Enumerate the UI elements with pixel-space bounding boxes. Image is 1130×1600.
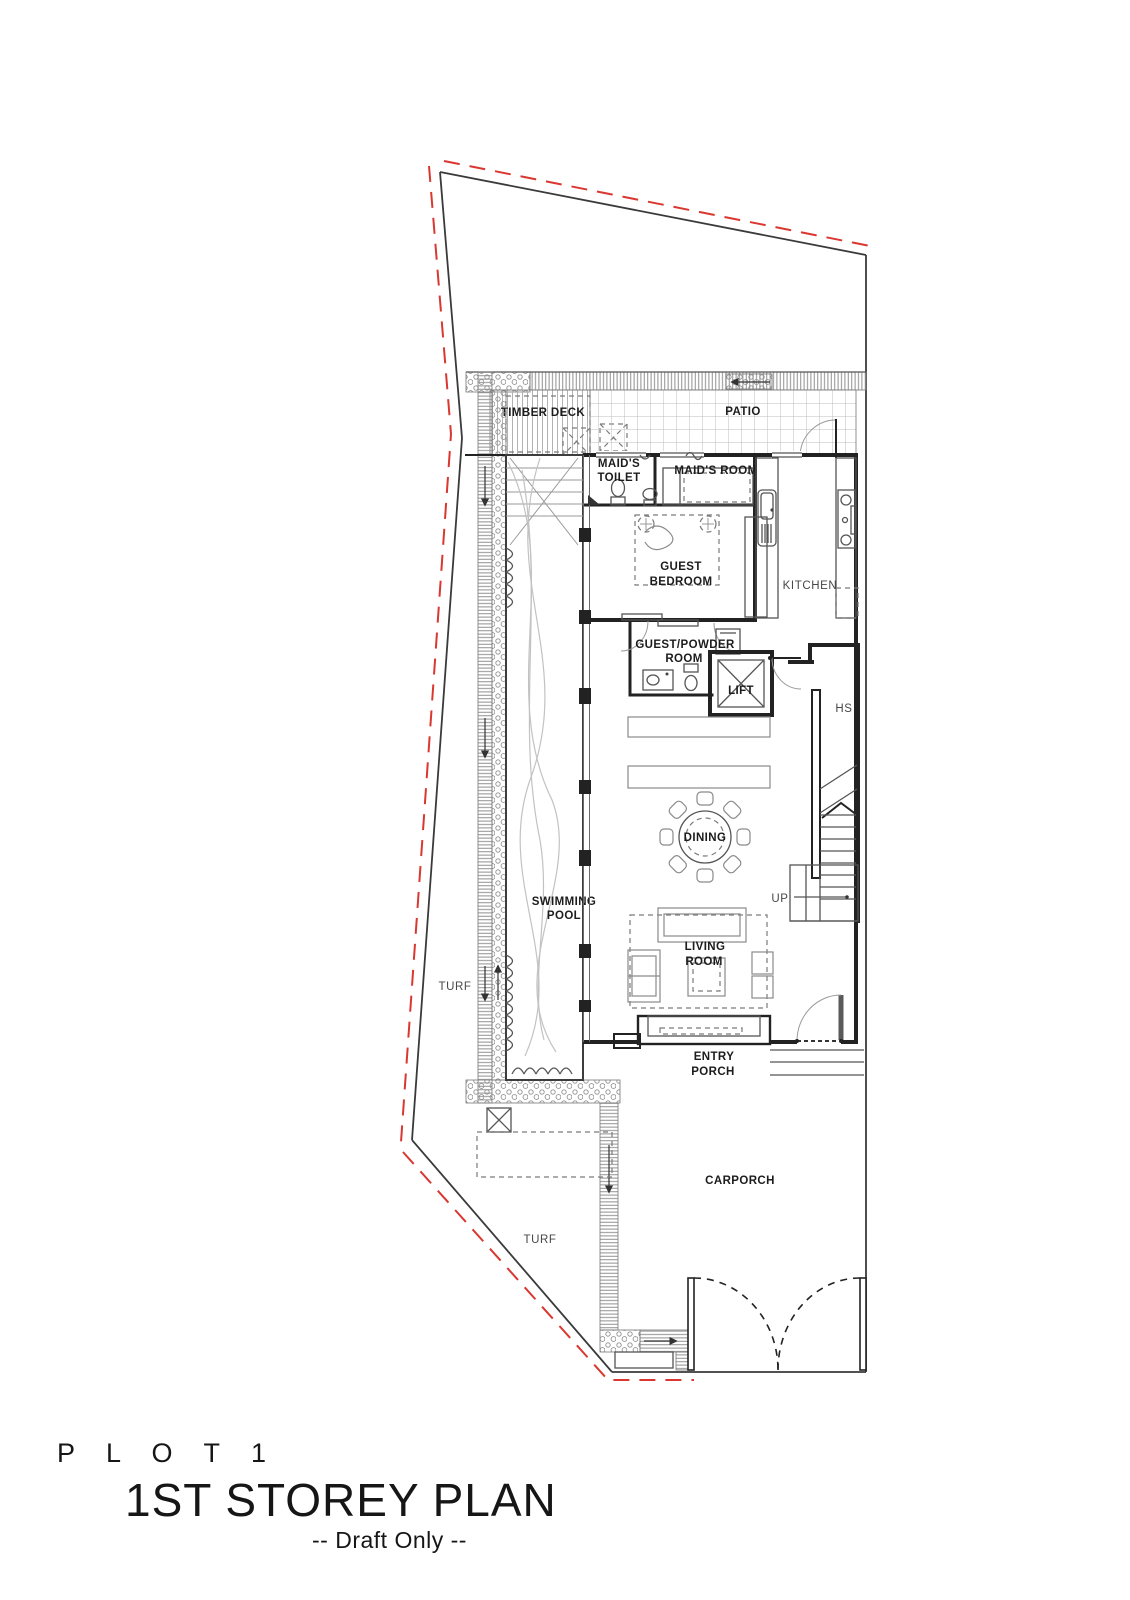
label-guest-bedroom-2: BEDROOM <box>650 576 713 588</box>
lift: LIFT <box>710 652 772 715</box>
label-dining: DINING <box>684 832 727 844</box>
guest-bedroom: GUEST BEDROOM <box>635 515 767 617</box>
label-up: UP <box>771 893 788 905</box>
kitchen-stove <box>838 490 856 548</box>
carporch: CARPORCH <box>688 1175 866 1370</box>
staircase: HS UP <box>768 645 858 921</box>
dining-set: DINING <box>660 792 750 882</box>
label-entry-porch-1: ENTRY <box>694 1051 735 1063</box>
label-swimming-pool-2: POOL <box>547 910 581 922</box>
label-patio: PATIO <box>725 406 760 418</box>
maids-toilet: MAID'S TOILET <box>588 455 657 506</box>
label-carporch: CARPORCH <box>705 1175 775 1187</box>
floor-plan-drawing: TIMBER DECK PATIO S <box>0 0 1130 1600</box>
bin-slab <box>615 1352 673 1368</box>
label-powder-1: GUEST/POWDER <box>635 639 735 651</box>
title-block: P L O T 1 1ST STOREY PLAN -- Draft Only … <box>57 1438 557 1553</box>
label-powder-2: ROOM <box>665 653 702 665</box>
label-lift: LIFT <box>728 685 754 697</box>
perimeter-drain-top <box>530 372 866 390</box>
main-entry-door <box>795 995 843 1043</box>
label-guest-bedroom-1: GUEST <box>660 561 702 573</box>
plot-number: P L O T 1 <box>57 1438 278 1468</box>
planter <box>477 1108 612 1177</box>
label-turf-bottom: TURF <box>523 1234 556 1246</box>
kitchen: KITCHEN <box>756 458 858 618</box>
label-turf-left: TURF <box>438 981 471 993</box>
label-kitchen: KITCHEN <box>783 580 838 592</box>
setback-red-line <box>401 161 870 1380</box>
label-living-2: ROOM <box>685 956 722 968</box>
label-maids-toilet-2: TOILET <box>597 472 640 484</box>
label-swimming-pool-1: SWIMMING <box>532 896 597 908</box>
label-living-1: LIVING <box>685 941 726 953</box>
floor-plan-page: TIMBER DECK PATIO S <box>0 0 1130 1600</box>
pebble-corner <box>466 372 530 392</box>
powder-room: GUEST/POWDER ROOM <box>621 621 742 691</box>
page-title: 1ST STOREY PLAN <box>125 1474 557 1526</box>
sliding-door <box>622 614 698 626</box>
label-timber-deck: TIMBER DECK <box>501 407 586 419</box>
entry-porch: ENTRY PORCH <box>614 1016 770 1078</box>
label-maids-room: MAID'S ROOM <box>674 465 757 477</box>
corridor-bands <box>628 717 770 788</box>
maids-room: MAID'S ROOM <box>663 465 758 505</box>
driveway-gates <box>688 1278 866 1370</box>
label-maids-toilet-1: MAID'S <box>598 458 640 470</box>
patio: PATIO <box>590 390 856 457</box>
entry-canopy-lines <box>770 1050 864 1075</box>
label-entry-porch-2: PORCH <box>691 1066 735 1078</box>
draft-note: -- Draft Only -- <box>312 1527 467 1553</box>
label-hs: HS <box>835 703 852 715</box>
living-room: LIVING ROOM <box>628 908 773 1008</box>
terrace <box>466 372 866 392</box>
